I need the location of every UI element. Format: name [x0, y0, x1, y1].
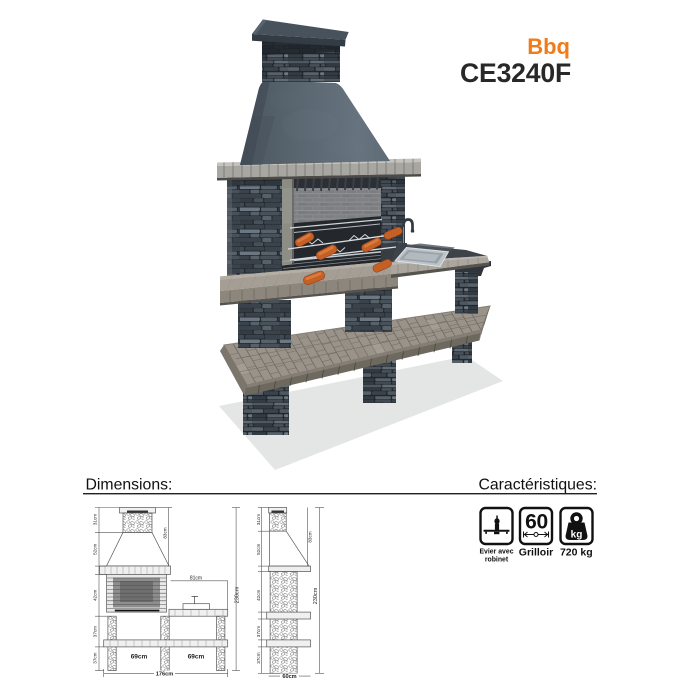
- svg-text:37cm: 37cm: [93, 626, 98, 637]
- svg-text:230cm: 230cm: [313, 587, 319, 604]
- svg-text:37cm: 37cm: [256, 626, 261, 637]
- svg-text:CE3240F: CE3240F: [460, 58, 571, 88]
- svg-text:Evier avec: Evier avec: [479, 548, 513, 555]
- svg-text:kg: kg: [571, 530, 583, 541]
- svg-text:Grilloir: Grilloir: [519, 547, 553, 559]
- svg-text:176cm: 176cm: [156, 672, 173, 678]
- svg-text:720 kg: 720 kg: [560, 547, 593, 559]
- svg-text:42cm: 42cm: [256, 590, 261, 601]
- svg-text:230cm: 230cm: [235, 586, 241, 603]
- svg-text:83cm: 83cm: [163, 527, 168, 538]
- svg-text:Bbq: Bbq: [527, 34, 570, 59]
- svg-text:52cm: 52cm: [256, 544, 261, 555]
- svg-text:37cm: 37cm: [256, 652, 261, 663]
- svg-text:31cm: 31cm: [93, 514, 98, 525]
- svg-text:83cm: 83cm: [308, 531, 313, 542]
- svg-text:37cm: 37cm: [93, 652, 98, 663]
- svg-text:Dimensions:: Dimensions:: [86, 477, 173, 494]
- svg-text:60: 60: [525, 511, 548, 534]
- svg-text:Caractéristiques:: Caractéristiques:: [478, 477, 597, 494]
- svg-text:60cm: 60cm: [282, 674, 296, 680]
- svg-text:robinet: robinet: [485, 557, 509, 564]
- svg-text:42cm: 42cm: [93, 590, 98, 601]
- svg-text:69cm: 69cm: [188, 654, 205, 661]
- svg-text:52cm: 52cm: [93, 544, 98, 555]
- svg-text:69cm: 69cm: [131, 654, 148, 661]
- svg-text:81cm: 81cm: [190, 576, 202, 582]
- svg-text:31cm: 31cm: [256, 514, 261, 525]
